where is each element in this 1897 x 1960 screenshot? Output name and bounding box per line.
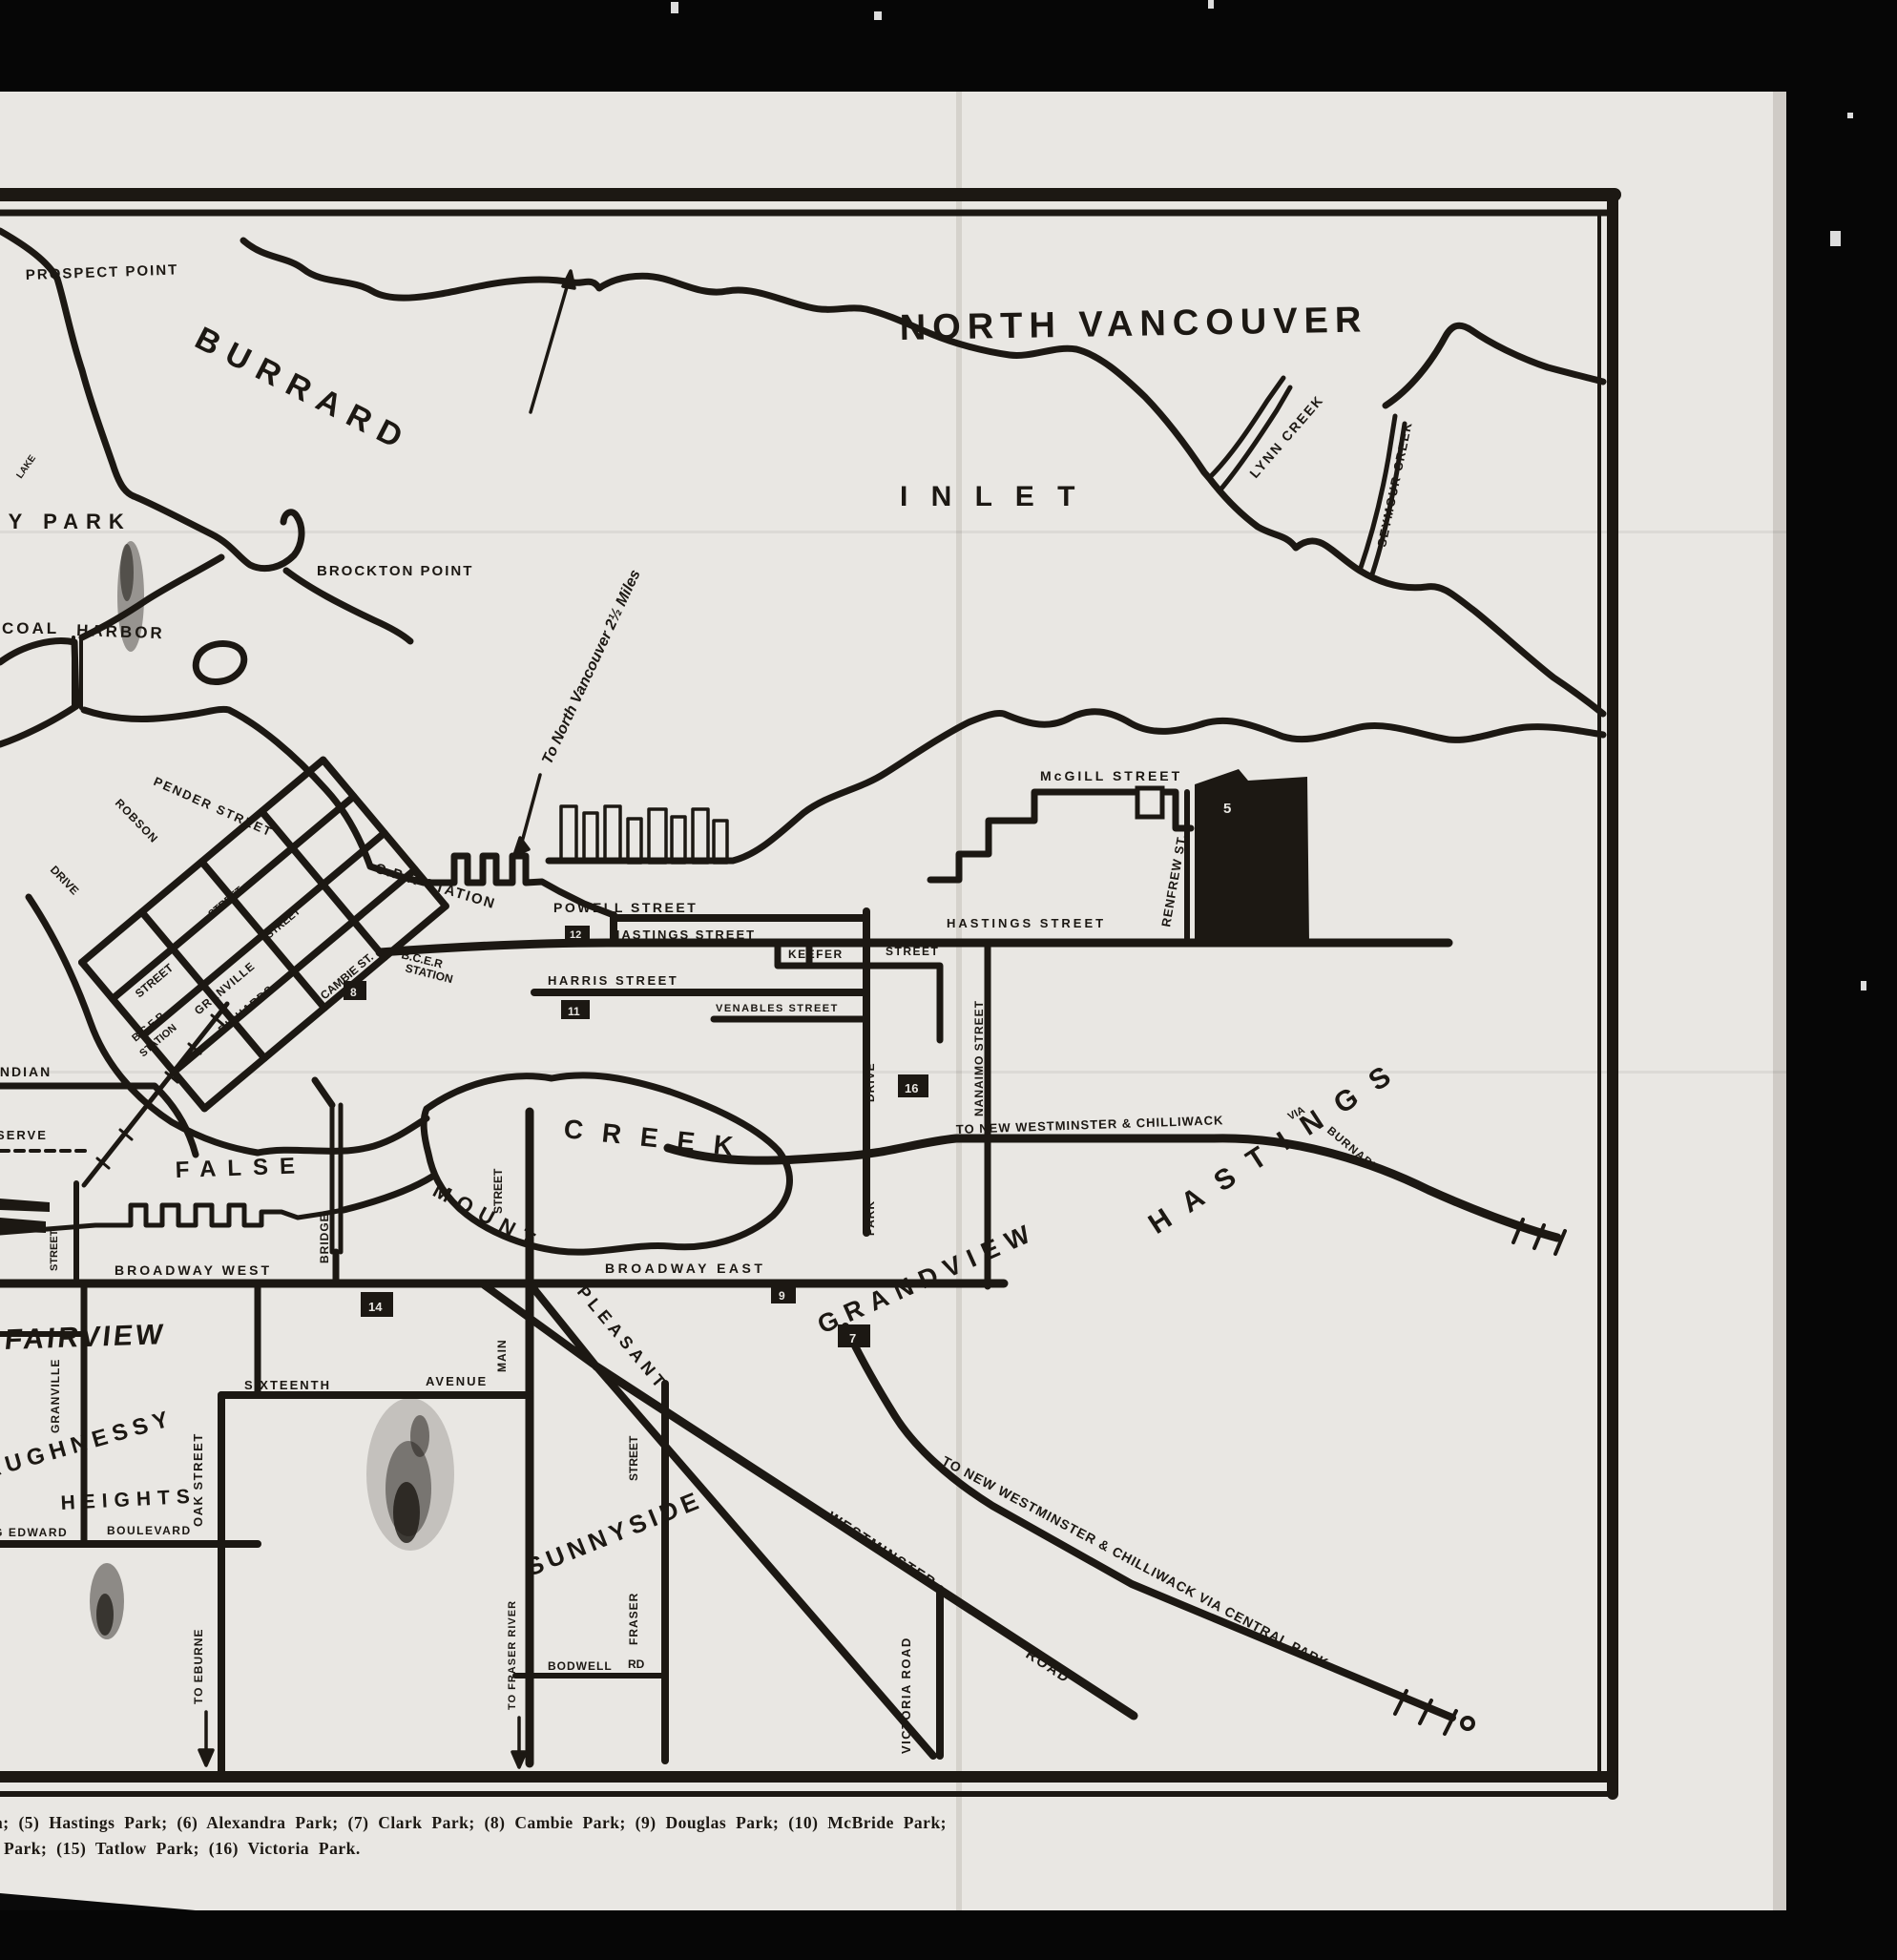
label-hastings-street-e: HASTINGS STREET (947, 916, 1106, 930)
legend-line-2: Park; (15) Tatlow Park; (16) Victoria Pa… (4, 1839, 361, 1858)
marker-12: 12 (565, 926, 590, 941)
marker-16: 16 (898, 1074, 928, 1097)
label-street-fraser-vert: STREET (627, 1435, 640, 1481)
label-keefer: KEEFER (788, 948, 844, 961)
fold-crease (956, 92, 962, 1910)
marker-12-number: 12 (570, 929, 581, 941)
marker-5-number: 5 (1223, 801, 1231, 817)
marker-7: 7 (838, 1324, 870, 1347)
marker-16-number: 16 (905, 1081, 918, 1095)
label-brockton-point: BROCKTON POINT (317, 563, 473, 579)
label-false: FALSE (175, 1153, 306, 1183)
label-granville-vert: GRANVILLE (49, 1359, 62, 1433)
marker-9: 9 (771, 1284, 796, 1303)
bottom-black-band (0, 1910, 1897, 1960)
label-park-vert: PARK (864, 1200, 877, 1236)
label-coal: COAL (2, 619, 59, 637)
marker-8: 8 (344, 981, 366, 1000)
label-king-edward: KING EDWARD (0, 1526, 68, 1539)
label-harbor: HARBOR (76, 621, 165, 642)
marker-11: 11 (561, 1000, 590, 1019)
marker-14-number: 14 (368, 1300, 383, 1314)
scan-streak-2 (0, 1071, 1786, 1074)
label-victoria-road: VICTORIA ROAD (899, 1637, 913, 1754)
label-stanley-park: EY PARK (0, 510, 132, 533)
label-sixteenth: SIXTEENTH (244, 1378, 331, 1392)
marker-8-number: 8 (350, 986, 357, 999)
label-inlet: I N L E T (900, 481, 1082, 512)
label-drive-vert: DRIVE (864, 1062, 877, 1102)
label-broadway-east: BROADWAY EAST (605, 1261, 765, 1276)
label-reserve: RESERVE (0, 1128, 48, 1142)
label-keefer-street-word: STREET (886, 945, 939, 958)
label-boulevard: BOULEVARD (107, 1524, 192, 1537)
label-street-granville-s: STREET (49, 1229, 60, 1271)
marker-9-number: 9 (779, 1289, 785, 1303)
marker-14: 14 (361, 1292, 393, 1317)
marker-11-number: 11 (568, 1005, 580, 1018)
label-rd: RD (628, 1658, 645, 1671)
label-mcgill-street: McGILL STREET (1040, 768, 1182, 783)
label-broadway-west: BROADWAY WEST (115, 1262, 272, 1278)
label-nanaimo-street: NANAIMO STREET (972, 1000, 986, 1116)
label-hastings-street-w: HASTINGS STREET (611, 928, 756, 942)
label-fairview: FAIRVIEW (3, 1319, 167, 1356)
scan-streak-1 (0, 531, 1786, 533)
label-bodwell: BODWELL (548, 1659, 613, 1673)
paper-right-edge (1773, 92, 1786, 1910)
label-harris-street: HARRIS STREET (548, 973, 678, 988)
label-to-eburne: TO EBURNE (192, 1629, 205, 1704)
label-north-vancouver: NORTH VANCOUVER (899, 300, 1367, 348)
label-indian: INDIAN (0, 1064, 52, 1079)
label-powell-street: POWELL STREET (553, 900, 698, 915)
scanned-map-photo: NORTH VANCOUVER BURRARD I N L E T LYNN C… (0, 0, 1897, 1960)
label-venables-street: VENABLES STREET (716, 1003, 839, 1014)
label-street-main-vert: STREET (491, 1168, 505, 1214)
label-bridge-vert: BRIDGE (318, 1213, 331, 1263)
label-oak-street-vert: OAK STREET (191, 1432, 205, 1527)
label-avenue: AVENUE (426, 1374, 488, 1388)
label-main-vert: MAIN (495, 1339, 509, 1372)
marker-7-number: 7 (849, 1331, 856, 1345)
legend-line-1: a; (5) Hastings Park; (6) Alexandra Park… (0, 1813, 947, 1832)
label-to-fraser-river: TO FRASER RIVER (507, 1600, 518, 1710)
vancouver-map-canvas: NORTH VANCOUVER BURRARD I N L E T LYNN C… (0, 0, 1897, 1960)
label-fraser-vert: FRASER (627, 1593, 640, 1645)
